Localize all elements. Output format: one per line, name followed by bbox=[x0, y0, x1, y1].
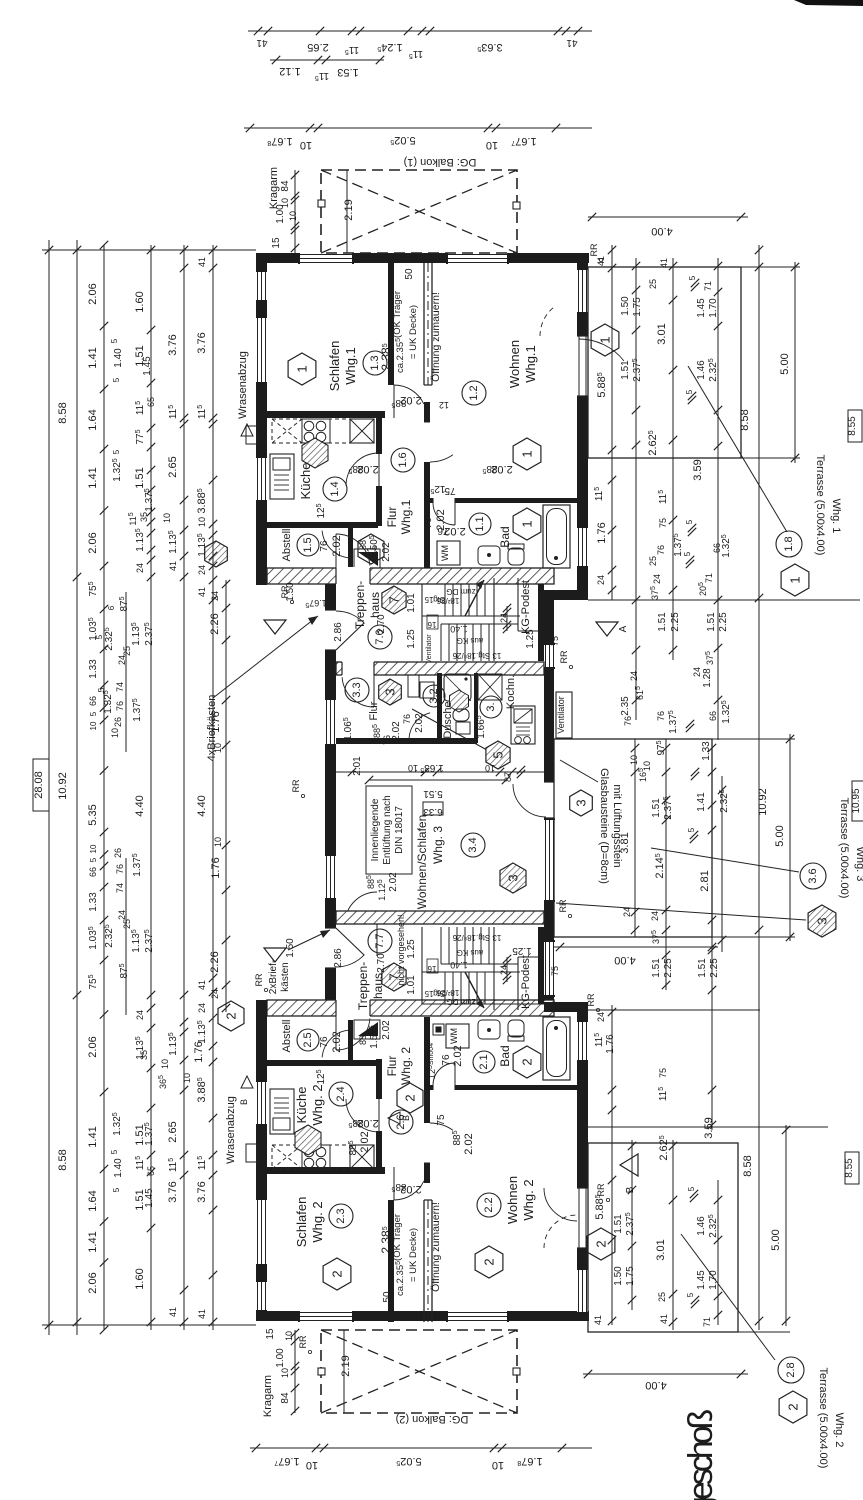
svg-text:41: 41 bbox=[168, 1307, 178, 1317]
svg-text:Abstell: Abstell bbox=[281, 1019, 293, 1052]
svg-text:Küche: Küche bbox=[298, 463, 313, 500]
svg-text:2.02: 2.02 bbox=[357, 1117, 378, 1129]
svg-text:1.40: 1.40 bbox=[450, 960, 468, 970]
svg-text:10: 10 bbox=[306, 1459, 318, 1471]
svg-text:Wohnen/Schlafen: Wohnen/Schlafen bbox=[415, 815, 429, 910]
svg-text:2.86: 2.86 bbox=[333, 622, 344, 642]
svg-text:75: 75 bbox=[658, 518, 668, 528]
svg-text:Terrasse (5.00x4.00): Terrasse (5.00x4.00) bbox=[817, 1368, 829, 1469]
svg-text:1.50: 1.50 bbox=[285, 582, 296, 602]
svg-text:41: 41 bbox=[197, 257, 207, 267]
svg-text:2: 2 bbox=[520, 1058, 535, 1065]
svg-text:76: 76 bbox=[115, 701, 125, 711]
svg-text:1.75: 1.75 bbox=[632, 297, 643, 317]
svg-text:6.33: 6.33 bbox=[423, 806, 443, 817]
svg-text:1.51: 1.51 bbox=[697, 958, 708, 978]
svg-text:2: 2 bbox=[330, 1270, 345, 1277]
svg-text:76: 76 bbox=[656, 545, 666, 555]
svg-text:1.51: 1.51 bbox=[134, 1124, 146, 1145]
svg-text:1.2: 1.2 bbox=[468, 385, 480, 400]
svg-text:2.02: 2.02 bbox=[331, 535, 343, 556]
svg-text:2.65: 2.65 bbox=[307, 41, 328, 53]
svg-text:74: 74 bbox=[115, 682, 125, 692]
svg-text:Whg. 2: Whg. 2 bbox=[399, 1047, 413, 1085]
svg-text:Whg.1: Whg.1 bbox=[399, 499, 413, 534]
svg-text:zum DG: zum DG bbox=[446, 997, 475, 1006]
svg-text:2.19: 2.19 bbox=[340, 1355, 352, 1376]
svg-text:10: 10 bbox=[300, 139, 312, 151]
svg-text:2.35: 2.35 bbox=[620, 696, 631, 716]
svg-text:Schlafen: Schlafen bbox=[327, 341, 342, 392]
svg-text:Dusche: Dusche bbox=[442, 701, 454, 738]
svg-text:5: 5 bbox=[112, 1187, 121, 1192]
svg-text:2: 2 bbox=[224, 1012, 239, 1019]
svg-text:13 Stg.18⁸/26: 13 Stg.18⁸/26 bbox=[452, 651, 501, 660]
svg-text:Öffnung zumauern!: Öffnung zumauern! bbox=[430, 1202, 442, 1292]
svg-text:2.26: 2.26 bbox=[209, 613, 221, 634]
svg-text:2.06: 2.06 bbox=[87, 1272, 99, 1293]
svg-text:3.01: 3.01 bbox=[656, 323, 668, 344]
svg-text:1.25: 1.25 bbox=[512, 945, 532, 956]
svg-text:1.12: 1.12 bbox=[279, 65, 300, 77]
svg-text:Innenliegende: Innenliegende bbox=[370, 798, 381, 861]
svg-text:3.2: 3.2 bbox=[428, 688, 440, 703]
svg-text:5.00: 5.00 bbox=[770, 1229, 782, 1250]
svg-text:10.95: 10.95 bbox=[851, 788, 862, 813]
svg-text:1.51: 1.51 bbox=[134, 467, 146, 488]
svg-text:2.02: 2.02 bbox=[400, 394, 421, 406]
svg-text:3.: 3. bbox=[485, 702, 497, 711]
svg-text:Terrasse (5.00x4.00): Terrasse (5.00x4.00) bbox=[814, 455, 826, 556]
svg-text:16: 16 bbox=[427, 620, 436, 629]
svg-text:2.25: 2.25 bbox=[709, 958, 720, 978]
svg-text:3.76: 3.76 bbox=[167, 334, 179, 355]
svg-text:Treppen-: Treppen- bbox=[353, 581, 367, 629]
svg-text:24: 24 bbox=[650, 911, 660, 921]
svg-text:1: 1 bbox=[598, 336, 613, 343]
svg-text:Ventilator: Ventilator bbox=[426, 634, 433, 664]
svg-text:10: 10 bbox=[408, 763, 418, 773]
svg-text:3: 3 bbox=[506, 874, 521, 881]
svg-text:1.50: 1.50 bbox=[285, 938, 296, 958]
svg-text:2.1: 2.1 bbox=[478, 1054, 490, 1069]
svg-text:10: 10 bbox=[485, 763, 495, 773]
svg-text:16: 16 bbox=[427, 964, 436, 973]
svg-text:3.3: 3.3 bbox=[351, 682, 363, 697]
svg-text:5: 5 bbox=[112, 449, 121, 454]
svg-text:A: A bbox=[618, 625, 629, 632]
svg-text:50: 50 bbox=[404, 268, 415, 280]
svg-text:10.92: 10.92 bbox=[57, 772, 69, 800]
svg-text:35: 35 bbox=[139, 512, 149, 522]
svg-text:DG: Balkon (1): DG: Balkon (1) bbox=[404, 156, 477, 168]
svg-text:1.01: 1.01 bbox=[406, 975, 417, 995]
svg-text:1: 1 bbox=[788, 576, 803, 583]
svg-text:1.51: 1.51 bbox=[657, 612, 668, 632]
svg-text:5: 5 bbox=[112, 377, 121, 382]
svg-text:2: 2 bbox=[594, 1240, 609, 1247]
svg-text:18²/26: 18²/26 bbox=[436, 988, 459, 997]
svg-text:1.75: 1.75 bbox=[625, 1266, 636, 1286]
svg-text:76: 76 bbox=[115, 864, 125, 874]
svg-text:Glasbausteine (D=8cm): Glasbausteine (D=8cm) bbox=[598, 768, 610, 884]
svg-text:2: 2 bbox=[482, 1258, 497, 1265]
svg-text:1.00: 1.00 bbox=[275, 204, 286, 224]
svg-text:7: 7 bbox=[387, 596, 402, 603]
svg-text:10: 10 bbox=[160, 1059, 170, 1069]
svg-text:1.40: 1.40 bbox=[113, 348, 124, 368]
svg-text:B: B bbox=[239, 1099, 249, 1105]
svg-text:41: 41 bbox=[593, 1315, 603, 1325]
svg-text:2.25: 2.25 bbox=[718, 612, 729, 632]
svg-text:10: 10 bbox=[492, 1459, 504, 1471]
svg-text:1.76: 1.76 bbox=[210, 711, 222, 732]
svg-text:24: 24 bbox=[499, 965, 509, 975]
svg-text:4.00: 4.00 bbox=[651, 225, 672, 237]
svg-text:Terrasse (5.00x4.00): Terrasse (5.00x4.00) bbox=[838, 798, 850, 899]
svg-text:41: 41 bbox=[197, 587, 207, 597]
svg-text:Flur: Flur bbox=[385, 1056, 399, 1077]
svg-text:5: 5 bbox=[686, 1292, 695, 1297]
svg-text:10: 10 bbox=[89, 844, 98, 853]
svg-text:1.28: 1.28 bbox=[702, 668, 713, 688]
svg-text:Treppen-: Treppen- bbox=[356, 962, 370, 1010]
svg-text:1.64: 1.64 bbox=[87, 409, 99, 430]
svg-text:1.33: 1.33 bbox=[88, 892, 99, 912]
svg-text:15: 15 bbox=[265, 1328, 276, 1340]
svg-text:2.02: 2.02 bbox=[331, 1031, 343, 1052]
svg-text:1.25: 1.25 bbox=[406, 629, 417, 649]
svg-text:Whg. 3: Whg. 3 bbox=[854, 847, 863, 882]
svg-text:66: 66 bbox=[708, 711, 718, 721]
svg-text:2.70: 2.70 bbox=[376, 614, 387, 634]
svg-text:Küche: Küche bbox=[294, 1087, 309, 1124]
svg-text:RR: RR bbox=[589, 243, 599, 256]
svg-text:KG-Podest: KG-Podest bbox=[520, 580, 532, 634]
svg-text:Öffnung zumauern!: Öffnung zumauern! bbox=[430, 292, 442, 382]
svg-text:Bad: Bad bbox=[498, 1045, 512, 1066]
svg-text:1: 1 bbox=[520, 450, 535, 457]
svg-text:1.51: 1.51 bbox=[706, 612, 717, 632]
svg-text:1.46: 1.46 bbox=[696, 1216, 707, 1236]
svg-text:4.00: 4.00 bbox=[645, 1379, 666, 1391]
svg-text:2.385: 2.385 bbox=[379, 1226, 393, 1253]
svg-text:4.00: 4.00 bbox=[614, 954, 635, 966]
svg-text:3: 3 bbox=[574, 799, 589, 806]
svg-text:2.02: 2.02 bbox=[357, 463, 378, 475]
svg-text:3.59: 3.59 bbox=[692, 459, 704, 480]
svg-text:24: 24 bbox=[596, 1012, 606, 1022]
svg-text:RR: RR bbox=[559, 650, 569, 663]
svg-text:2.06: 2.06 bbox=[87, 1036, 99, 1057]
svg-text:2.06: 2.06 bbox=[87, 283, 99, 304]
svg-text:24: 24 bbox=[622, 907, 632, 917]
svg-text:8.58: 8.58 bbox=[742, 1155, 754, 1176]
svg-text:1.45: 1.45 bbox=[696, 1270, 707, 1290]
svg-text:Whg.1: Whg.1 bbox=[523, 345, 538, 383]
svg-text:1.40: 1.40 bbox=[113, 1158, 124, 1178]
svg-text:2.02: 2.02 bbox=[388, 872, 399, 892]
svg-text:3.6: 3.6 bbox=[807, 868, 819, 883]
svg-text:1.41: 1.41 bbox=[87, 1231, 99, 1252]
svg-text:2.02: 2.02 bbox=[463, 1133, 475, 1154]
svg-text:5: 5 bbox=[687, 827, 696, 832]
svg-text:71: 71 bbox=[704, 573, 714, 583]
svg-text:8.55: 8.55 bbox=[844, 1158, 855, 1178]
svg-text:haus: haus bbox=[368, 592, 382, 618]
svg-text:24: 24 bbox=[197, 565, 207, 575]
svg-text:2.19: 2.19 bbox=[343, 199, 355, 220]
svg-text:5: 5 bbox=[89, 857, 98, 862]
svg-text:RR: RR bbox=[558, 899, 568, 912]
svg-text:3.76: 3.76 bbox=[196, 1181, 208, 1202]
svg-text:1.00: 1.00 bbox=[275, 1348, 286, 1368]
svg-text:Flur: Flur bbox=[368, 701, 380, 720]
svg-text:13 Stg.18⁸/26: 13 Stg.18⁸/26 bbox=[452, 933, 501, 942]
svg-text:2.25: 2.25 bbox=[663, 958, 674, 978]
svg-text:10: 10 bbox=[197, 517, 207, 527]
svg-text:4.40: 4.40 bbox=[134, 795, 146, 816]
svg-text:3.4: 3.4 bbox=[467, 837, 479, 852]
svg-text:Whg. 2: Whg. 2 bbox=[310, 1084, 325, 1125]
svg-text:RR: RR bbox=[254, 973, 264, 986]
svg-text:1.41: 1.41 bbox=[696, 792, 707, 812]
svg-text:Wrasenabzug: Wrasenabzug bbox=[237, 351, 249, 419]
svg-text:75: 75 bbox=[658, 1068, 668, 1078]
svg-text:2.02: 2.02 bbox=[381, 1020, 392, 1040]
svg-text:75: 75 bbox=[444, 485, 456, 496]
svg-text:5: 5 bbox=[110, 338, 119, 343]
svg-text:26: 26 bbox=[113, 717, 123, 727]
svg-text:66: 66 bbox=[88, 696, 98, 706]
svg-text:2.70: 2.70 bbox=[376, 953, 387, 973]
svg-text:1.51: 1.51 bbox=[613, 1214, 624, 1234]
svg-text:5: 5 bbox=[110, 1149, 119, 1154]
svg-text:3: 3 bbox=[383, 688, 398, 695]
svg-text:75: 75 bbox=[550, 636, 560, 646]
svg-text:1.50: 1.50 bbox=[620, 296, 631, 316]
svg-text:76: 76 bbox=[319, 1036, 330, 1048]
svg-text:1.53: 1.53 bbox=[337, 66, 358, 78]
svg-text:76: 76 bbox=[319, 540, 330, 552]
svg-text:1.51: 1.51 bbox=[134, 345, 146, 366]
svg-text:24: 24 bbox=[629, 671, 639, 681]
svg-text:DG: Balkon (2): DG: Balkon (2) bbox=[396, 1413, 469, 1425]
svg-text:84: 84 bbox=[280, 1392, 291, 1404]
svg-text:24: 24 bbox=[135, 563, 145, 573]
svg-text:zum DG: zum DG bbox=[446, 587, 475, 596]
svg-text:Flur: Flur bbox=[385, 507, 399, 528]
svg-text:7.7: 7.7 bbox=[374, 933, 386, 948]
svg-text:3.81: 3.81 bbox=[619, 832, 631, 853]
svg-text:50: 50 bbox=[382, 1291, 393, 1303]
svg-text:1.5: 1.5 bbox=[302, 537, 314, 552]
svg-text:3.76: 3.76 bbox=[167, 1181, 179, 1202]
svg-text:5.51: 5.51 bbox=[423, 788, 443, 799]
svg-text:2.02: 2.02 bbox=[359, 1131, 371, 1152]
svg-text:76: 76 bbox=[656, 711, 666, 721]
svg-text:5: 5 bbox=[95, 634, 104, 639]
svg-text:71: 71 bbox=[702, 1317, 712, 1327]
svg-text:5: 5 bbox=[685, 389, 694, 394]
svg-text:5.35: 5.35 bbox=[87, 804, 99, 825]
svg-text:1.46: 1.46 bbox=[696, 360, 707, 380]
svg-text:41: 41 bbox=[197, 1309, 207, 1319]
svg-text:87: 87 bbox=[503, 772, 513, 782]
svg-text:2.02: 2.02 bbox=[444, 525, 465, 537]
svg-text:1.51: 1.51 bbox=[651, 958, 662, 978]
svg-text:nicht vorgesehen!: nicht vorgesehen! bbox=[396, 914, 406, 985]
svg-text:5: 5 bbox=[97, 687, 106, 692]
svg-text:aus KG: aus KG bbox=[457, 636, 484, 645]
svg-text:2.3: 2.3 bbox=[335, 1208, 347, 1223]
svg-text:10: 10 bbox=[280, 1368, 290, 1378]
svg-text:76: 76 bbox=[402, 714, 412, 724]
svg-text:2.02: 2.02 bbox=[435, 509, 447, 530]
svg-text:3.59: 3.59 bbox=[703, 1117, 715, 1138]
svg-text:1.76: 1.76 bbox=[596, 522, 608, 543]
svg-text:1.25: 1.25 bbox=[406, 939, 417, 959]
svg-text:5.00: 5.00 bbox=[774, 825, 786, 846]
svg-text:10: 10 bbox=[486, 139, 498, 151]
svg-text:8.58: 8.58 bbox=[57, 402, 69, 423]
svg-text:1.4: 1.4 bbox=[329, 481, 341, 496]
svg-text:1: 1 bbox=[295, 365, 310, 372]
svg-text:75: 75 bbox=[436, 1114, 447, 1126]
svg-text:1: 1 bbox=[520, 520, 535, 527]
svg-text:3.76: 3.76 bbox=[196, 332, 208, 353]
svg-text:10: 10 bbox=[162, 513, 172, 523]
svg-text:18²/26: 18²/26 bbox=[436, 596, 459, 605]
svg-text:25: 25 bbox=[122, 646, 132, 656]
svg-text:10: 10 bbox=[629, 755, 639, 765]
svg-text:1.76: 1.76 bbox=[605, 1034, 616, 1054]
svg-text:2.65: 2.65 bbox=[167, 456, 179, 477]
svg-text:Whg. 1: Whg. 1 bbox=[830, 499, 842, 534]
svg-text:24: 24 bbox=[596, 575, 606, 585]
svg-text:1.33: 1.33 bbox=[701, 741, 712, 761]
svg-text:Erdgeschoß: Erdgeschoß bbox=[682, 1409, 720, 1500]
svg-text:10: 10 bbox=[213, 837, 223, 847]
svg-text:24: 24 bbox=[135, 1010, 145, 1020]
svg-text:5.00: 5.00 bbox=[779, 353, 791, 374]
svg-text:71: 71 bbox=[703, 281, 713, 291]
svg-text:Kragarm: Kragarm bbox=[268, 167, 280, 209]
svg-text:2.02: 2.02 bbox=[452, 1045, 464, 1066]
svg-text:Entlüftung nach: Entlüftung nach bbox=[382, 795, 393, 865]
svg-text:41: 41 bbox=[197, 980, 207, 990]
svg-text:WM: WM bbox=[449, 1028, 459, 1044]
svg-text:Bad: Bad bbox=[498, 526, 512, 547]
svg-text:1.40: 1.40 bbox=[450, 624, 468, 634]
svg-text:25: 25 bbox=[648, 556, 658, 566]
svg-text:10: 10 bbox=[288, 211, 298, 221]
svg-text:2.02: 2.02 bbox=[400, 1183, 421, 1195]
svg-text:1.50: 1.50 bbox=[613, 1266, 624, 1286]
svg-text:Ventilator: Ventilator bbox=[556, 696, 566, 734]
svg-text:5: 5 bbox=[685, 519, 694, 524]
svg-text:1.51: 1.51 bbox=[651, 798, 662, 818]
svg-text:Sm004: Sm004 bbox=[428, 1043, 435, 1065]
svg-text:2.2: 2.2 bbox=[483, 1197, 495, 1212]
svg-text:2.81: 2.81 bbox=[699, 870, 711, 891]
svg-text:kästen: kästen bbox=[280, 962, 291, 991]
svg-text:2.01: 2.01 bbox=[352, 756, 363, 776]
svg-text:24: 24 bbox=[197, 1003, 207, 1013]
svg-text:Wohnen: Wohnen bbox=[507, 340, 522, 388]
svg-text:1.51: 1.51 bbox=[134, 1189, 146, 1210]
svg-text:1.33: 1.33 bbox=[88, 659, 99, 679]
svg-text:24: 24 bbox=[692, 667, 702, 677]
svg-text:1.70: 1.70 bbox=[708, 298, 719, 318]
svg-text:84: 84 bbox=[280, 180, 291, 192]
svg-text:26: 26 bbox=[113, 848, 123, 858]
svg-text:= UK Decke): = UK Decke) bbox=[408, 305, 419, 359]
svg-text:3: 3 bbox=[815, 917, 830, 924]
svg-text:1.1: 1.1 bbox=[474, 516, 486, 531]
svg-text:41: 41 bbox=[659, 1314, 669, 1324]
svg-text:2xBrief-: 2xBrief- bbox=[268, 960, 279, 994]
svg-text:2: 2 bbox=[403, 1094, 418, 1101]
svg-text:15: 15 bbox=[271, 237, 282, 249]
svg-text:1.01: 1.01 bbox=[406, 593, 417, 613]
svg-text:aus KG: aus KG bbox=[457, 948, 484, 957]
svg-text:1.6: 1.6 bbox=[397, 452, 409, 467]
svg-text:6: 6 bbox=[107, 605, 116, 610]
svg-text:WM: WM bbox=[440, 545, 450, 561]
svg-text:10: 10 bbox=[213, 743, 223, 753]
svg-text:8.55: 8.55 bbox=[847, 416, 858, 436]
svg-text:2.4: 2.4 bbox=[335, 1086, 347, 1101]
svg-text:41: 41 bbox=[659, 258, 669, 268]
svg-text:2: 2 bbox=[786, 1403, 801, 1410]
svg-text:Kochn.: Kochn. bbox=[505, 675, 517, 709]
svg-text:24: 24 bbox=[652, 574, 662, 584]
svg-text:1.60: 1.60 bbox=[134, 291, 146, 312]
svg-text:76: 76 bbox=[423, 517, 434, 529]
svg-text:KG-Podest: KG-Podest bbox=[520, 955, 532, 1009]
svg-text:Abstell: Abstell bbox=[281, 528, 293, 561]
svg-text:2.26: 2.26 bbox=[209, 951, 221, 972]
svg-text:RR: RR bbox=[586, 993, 596, 1006]
svg-text:5: 5 bbox=[688, 275, 697, 280]
svg-text:1: 1 bbox=[364, 545, 379, 552]
svg-text:25: 25 bbox=[648, 279, 658, 289]
svg-text:RR: RR bbox=[291, 779, 301, 792]
svg-text:Whg. 2: Whg. 2 bbox=[310, 1201, 325, 1242]
svg-text:1.41: 1.41 bbox=[87, 347, 99, 368]
svg-text:1.41: 1.41 bbox=[87, 1126, 99, 1147]
svg-text:1.41: 1.41 bbox=[87, 467, 99, 488]
svg-text:75: 75 bbox=[550, 966, 560, 976]
svg-text:25: 25 bbox=[657, 1292, 667, 1302]
svg-text:4.40: 4.40 bbox=[196, 795, 208, 816]
svg-text:12: 12 bbox=[439, 400, 449, 410]
svg-text:1.45: 1.45 bbox=[696, 298, 707, 318]
svg-text:Kragarm: Kragarm bbox=[262, 1375, 274, 1417]
svg-text:Wohnen: Wohnen bbox=[505, 1176, 520, 1224]
svg-text:24: 24 bbox=[210, 591, 220, 601]
svg-text:3.01: 3.01 bbox=[655, 1239, 667, 1260]
svg-text:10: 10 bbox=[89, 721, 98, 730]
svg-text:41: 41 bbox=[256, 37, 268, 48]
svg-text:Whg. 3: Whg. 3 bbox=[431, 826, 445, 864]
svg-text:2.86: 2.86 bbox=[333, 948, 344, 968]
svg-text:2.385: 2.385 bbox=[379, 343, 393, 370]
svg-text:1.60: 1.60 bbox=[134, 1268, 146, 1289]
svg-text:Whg. 2: Whg. 2 bbox=[833, 1413, 845, 1448]
svg-text:5: 5 bbox=[687, 1186, 696, 1191]
